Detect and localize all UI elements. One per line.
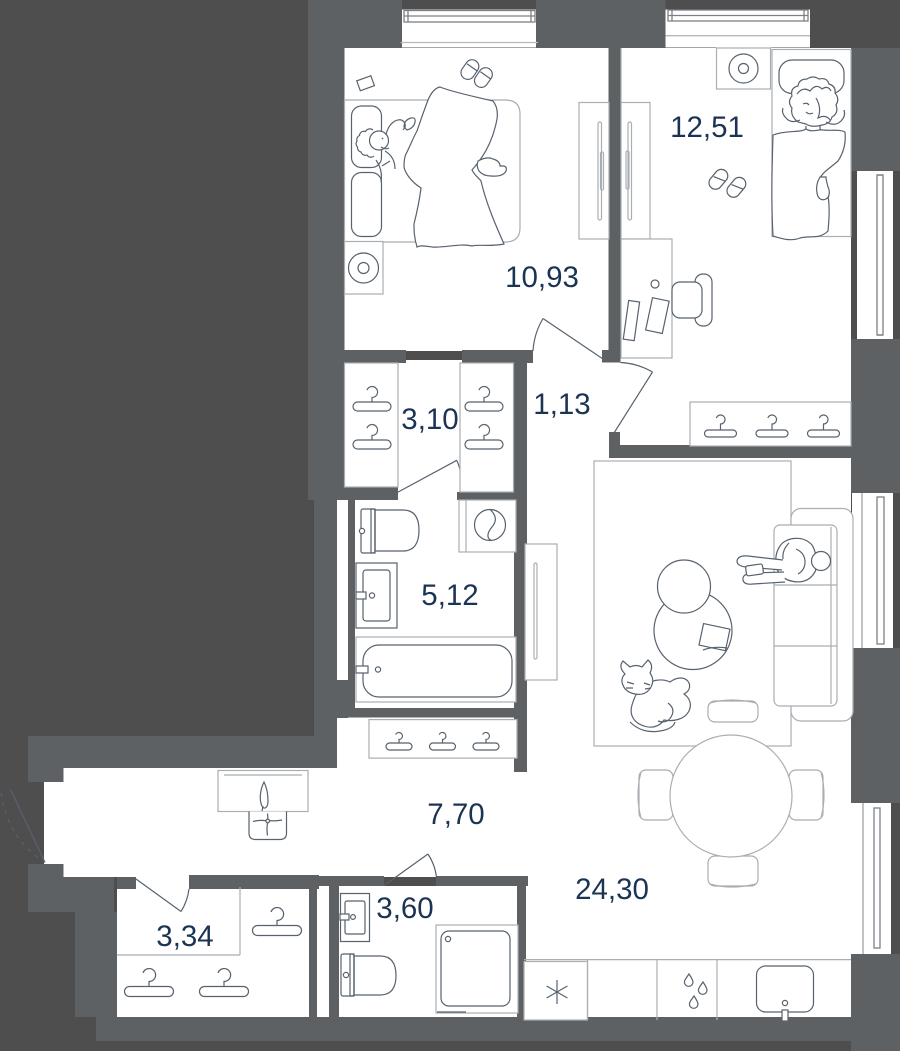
svg-text:3,60: 3,60 [376, 892, 433, 925]
svg-text:3,10: 3,10 [401, 403, 458, 436]
svg-text:3,34: 3,34 [156, 920, 213, 953]
svg-text:10,93: 10,93 [505, 261, 579, 294]
svg-text:1,13: 1,13 [533, 388, 590, 421]
svg-text:7,70: 7,70 [427, 798, 484, 831]
svg-text:12,51: 12,51 [670, 111, 744, 144]
svg-text:5,12: 5,12 [421, 579, 478, 612]
svg-text:24,30: 24,30 [575, 873, 649, 906]
